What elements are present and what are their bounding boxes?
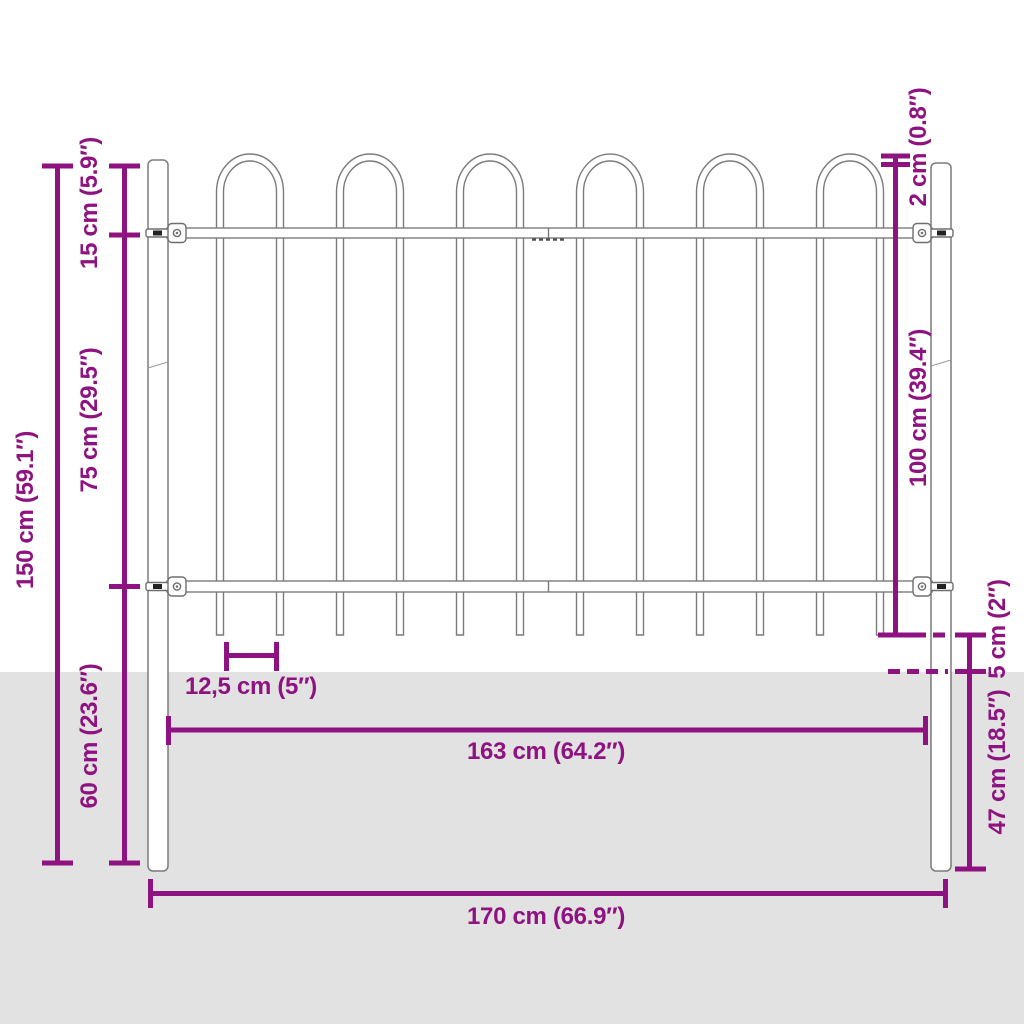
left-post xyxy=(148,160,168,871)
hoop-3 xyxy=(457,154,524,635)
dim-label-spike-ground-gap: 5 cm (2″) xyxy=(984,579,1012,679)
dim-line-left-segments xyxy=(109,166,140,863)
dim-label-hoop-height: 15 cm (5.9″) xyxy=(76,137,104,269)
dim-line-total-height xyxy=(42,166,73,863)
top-rail xyxy=(167,228,932,238)
hoop-6 xyxy=(817,154,884,635)
dim-line-spike-and-post-depth xyxy=(955,635,986,869)
dim-label-bar-spacing: 12,5 cm (5″) xyxy=(185,673,317,701)
dim-label-below-rail: 60 cm (23.6″) xyxy=(76,663,104,808)
dimension-lines xyxy=(42,156,986,908)
hoop-2 xyxy=(337,154,404,635)
fence-dimension-diagram: 150 cm (59.1″) 15 cm (5.9″) 75 cm (29.5″… xyxy=(0,0,1024,1024)
right-post xyxy=(931,163,951,871)
dim-label-panel-height: 100 cm (39.4″) xyxy=(905,329,933,487)
fence-illustration xyxy=(0,0,1024,1024)
dim-label-post-depth: 47 cm (18.5″) xyxy=(984,689,1012,834)
dim-label-panel-width: 163 cm (64.2″) xyxy=(467,738,625,766)
dim-label-rail-spacing: 75 cm (29.5″) xyxy=(76,347,104,492)
bottom-rail xyxy=(167,581,932,592)
hoop-pickets xyxy=(217,154,884,635)
hoop-4 xyxy=(577,154,644,635)
mounting-brackets xyxy=(146,224,953,597)
dim-label-total-height: 150 cm (59.1″) xyxy=(12,431,40,589)
hoop-5 xyxy=(697,154,764,635)
dim-line-bar-spacing xyxy=(227,642,277,671)
hoop-1 xyxy=(217,154,284,635)
dim-label-hoop-above-post: 2 cm (0.8″) xyxy=(905,88,933,207)
dim-label-total-width: 170 cm (66.9″) xyxy=(467,903,625,931)
